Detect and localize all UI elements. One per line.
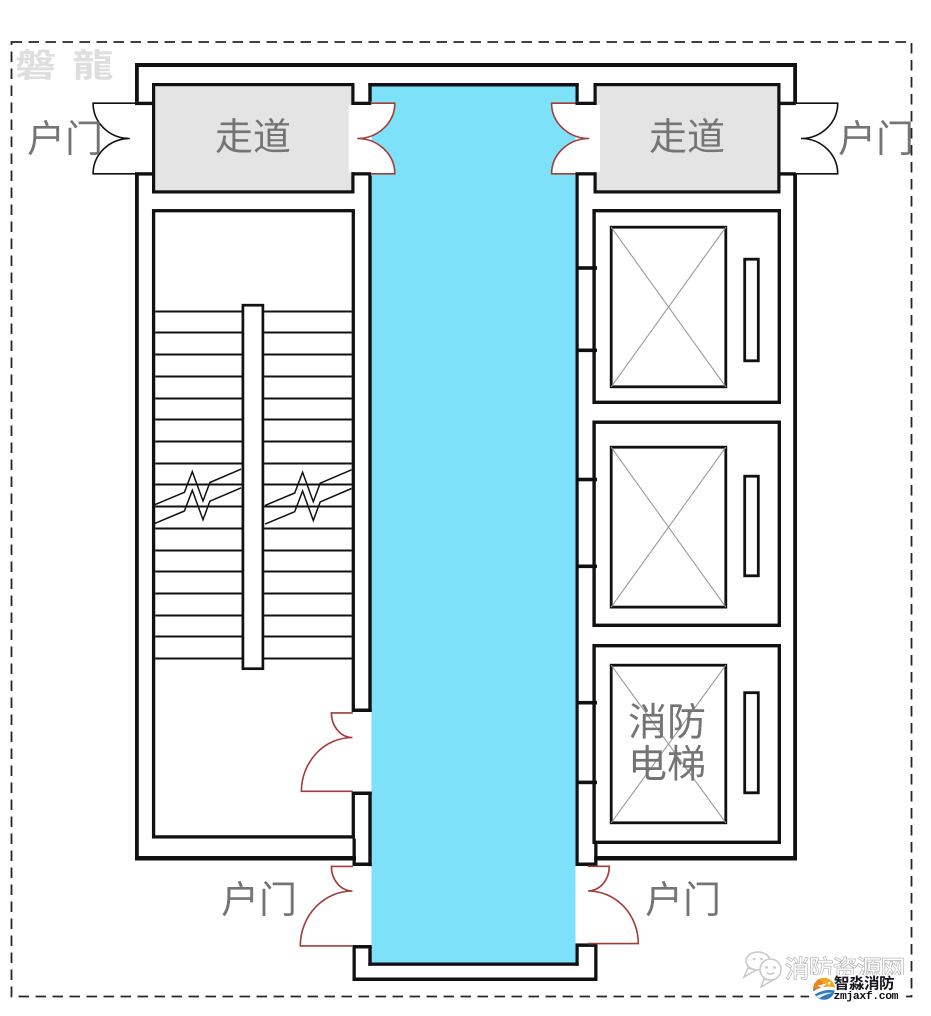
svg-text:zmjaxf.com: zmjaxf.com xyxy=(834,991,899,1003)
